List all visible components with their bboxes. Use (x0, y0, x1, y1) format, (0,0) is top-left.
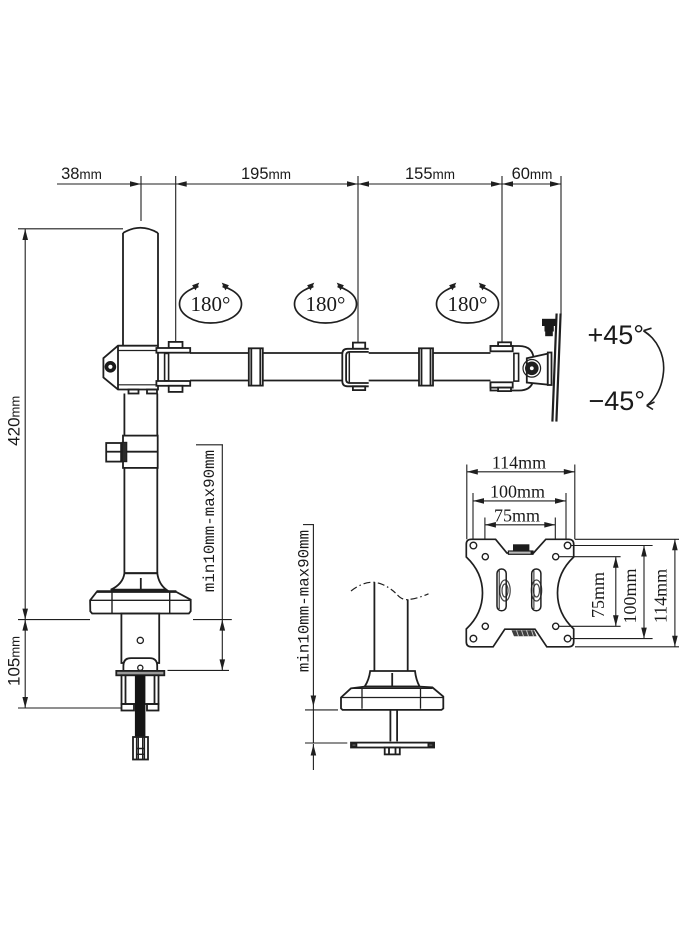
svg-text:114mm: 114mm (651, 569, 671, 623)
svg-text:100mm: 100mm (490, 482, 545, 502)
svg-text:114mm: 114mm (492, 453, 546, 473)
svg-text:75mm: 75mm (588, 572, 608, 618)
svg-text:−45°: −45° (589, 386, 646, 416)
svg-text:60mm: 60mm (512, 165, 553, 183)
svg-text:38mm: 38mm (61, 165, 102, 183)
svg-text:420mm: 420mm (5, 396, 24, 446)
svg-text:180°: 180° (191, 292, 231, 316)
svg-text:195mm: 195mm (241, 165, 291, 183)
svg-text:180°: 180° (306, 292, 346, 316)
svg-text:155mm: 155mm (405, 165, 455, 183)
svg-text:min10mm-max90mm: min10mm-max90mm (201, 450, 219, 592)
svg-text:100mm: 100mm (620, 568, 640, 623)
svg-text:min10mm-max90mm: min10mm-max90mm (296, 530, 314, 672)
svg-text:105mm: 105mm (5, 636, 24, 686)
svg-text:+45°: +45° (588, 320, 645, 350)
svg-text:180°: 180° (448, 292, 488, 316)
svg-text:75mm: 75mm (494, 506, 540, 526)
